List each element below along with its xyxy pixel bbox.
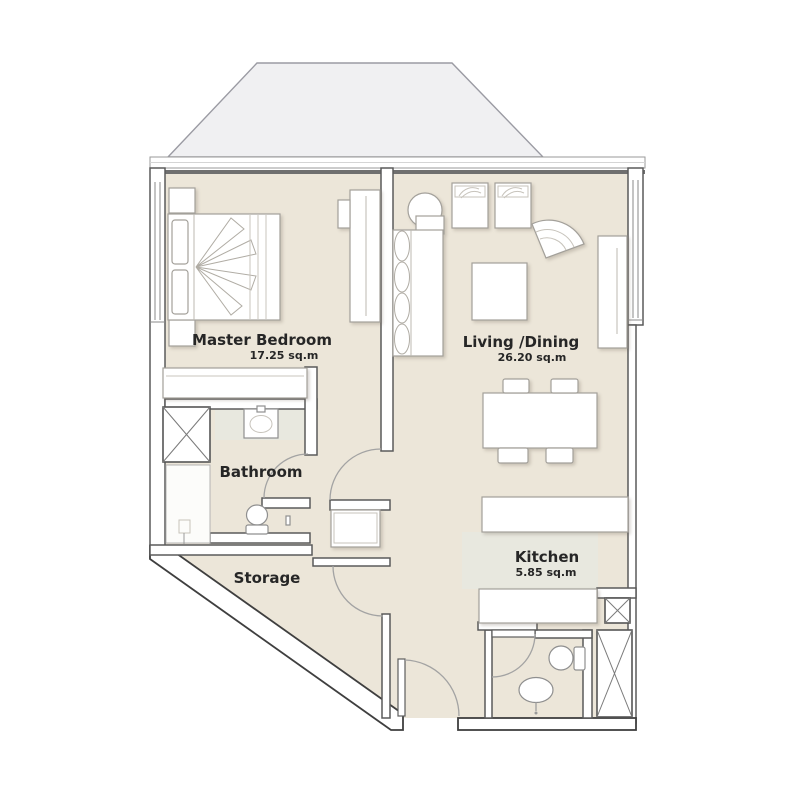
- dining-chair-2: [551, 379, 578, 393]
- room-area-master-bedroom: 17.25 sq.m: [250, 349, 319, 362]
- shower-niche: [166, 465, 210, 543]
- corridor-door-stub: [330, 500, 390, 510]
- bathroom-shaft: [163, 407, 210, 462]
- vanity-sink: [244, 409, 278, 438]
- room-label-living-dining: Living /Dining: [463, 333, 580, 351]
- room-label-kitchen: Kitchen: [515, 548, 579, 566]
- room-area-kitchen: 5.85 sq.m: [515, 566, 576, 579]
- roof-outline: [168, 63, 543, 157]
- wc-sink-drain: [535, 712, 538, 715]
- wc-east-wall: [583, 630, 592, 718]
- room-label-storage: Storage: [234, 569, 301, 587]
- wc-north-wall: [535, 630, 592, 638]
- hall-closet: [331, 510, 380, 547]
- wc-door-leaf: [492, 630, 535, 637]
- wc-toilet-tank: [574, 647, 585, 670]
- bedroom-closet: [163, 368, 307, 398]
- bed-pillow-bottom: [172, 270, 188, 314]
- north-wall-line: [150, 170, 645, 174]
- kitchen-duct: [605, 598, 630, 623]
- armchair-2: [495, 183, 531, 228]
- dining-table: [483, 393, 597, 448]
- storage-north-wall: [150, 545, 312, 555]
- bathroom-toilet-tank: [246, 525, 268, 534]
- room-area-living-dining: 26.20 sq.m: [498, 351, 567, 364]
- bedroom-living-wall: [381, 168, 393, 451]
- wc-sink: [519, 678, 553, 703]
- service-shaft: [597, 630, 632, 717]
- bathroom-toilet-bowl: [247, 505, 268, 525]
- wardrobe: [350, 190, 380, 322]
- sideboard: [598, 236, 627, 348]
- dining-chair-3: [498, 448, 528, 463]
- entry-hall-wall: [382, 614, 390, 718]
- dining-chair-4: [546, 448, 573, 463]
- vanity-tap: [257, 406, 265, 412]
- wc-toilet-bowl: [549, 646, 573, 670]
- south-wall: [458, 718, 636, 730]
- nightstand-top: [169, 188, 195, 213]
- room-label-master-bedroom: Master Bedroom: [192, 331, 332, 349]
- wall-shelf: [338, 200, 350, 228]
- kitchen-counter-top: [482, 497, 628, 532]
- wc-west-wall: [485, 630, 492, 718]
- kitchen-counter-bottom: [479, 589, 597, 623]
- bathroom-door-stub: [262, 498, 310, 508]
- kitchen-east-stub: [597, 588, 636, 598]
- armchair-1: [452, 183, 488, 228]
- bed-pillow-top: [172, 220, 188, 264]
- entrance-door-leaf: [398, 659, 405, 716]
- east-window-wall: [628, 168, 643, 325]
- west-wall: [150, 168, 165, 558]
- floor-plan-drawing: Master Bedroom 17.25 sq.m Living /Dining…: [0, 0, 800, 800]
- floor-plan: Master Bedroom 17.25 sq.m Living /Dining…: [0, 0, 800, 800]
- storage-east-wall: [313, 558, 390, 566]
- coffee-table: [472, 263, 527, 320]
- flush-button: [286, 516, 290, 525]
- room-label-bathroom: Bathroom: [219, 463, 302, 481]
- dining-chair-1: [503, 379, 529, 393]
